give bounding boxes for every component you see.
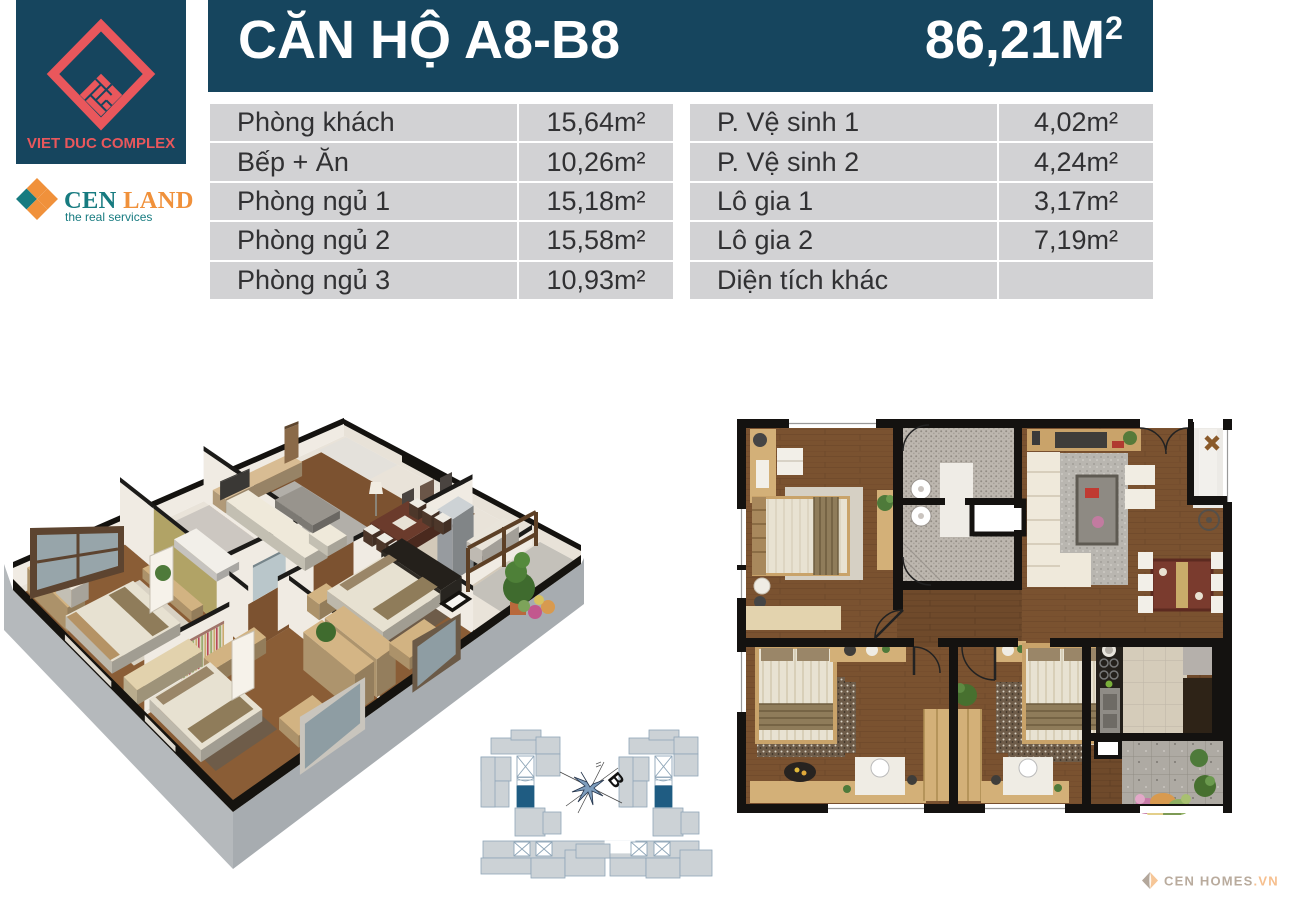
svg-text:the real services: the real services [65, 210, 152, 224]
svg-text:CEN HOMES.VN: CEN HOMES.VN [1164, 874, 1279, 889]
